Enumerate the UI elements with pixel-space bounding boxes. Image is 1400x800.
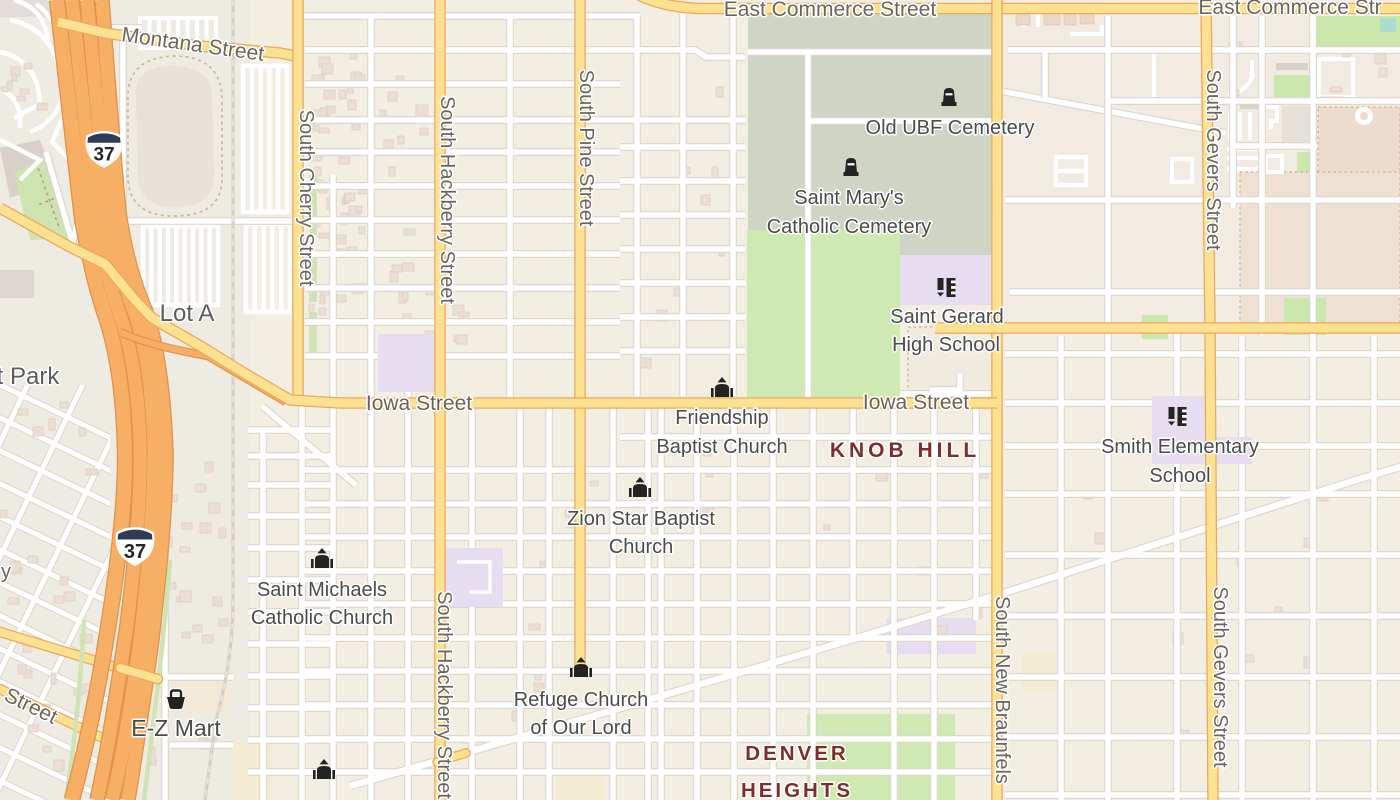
svg-text:Saint Mary's: Saint Mary's: [794, 187, 903, 209]
svg-text:Iowa Street: Iowa Street: [863, 391, 969, 414]
svg-text:Friendship: Friendship: [675, 407, 768, 429]
svg-text:South Pine Street: South Pine Street: [575, 70, 597, 227]
svg-text:Refuge Church: Refuge Church: [514, 689, 649, 711]
svg-text:HEIGHTS: HEIGHTS: [741, 779, 853, 800]
svg-text:Saint Michaels: Saint Michaels: [257, 579, 387, 601]
svg-text:E-Z Mart: E-Z Mart: [131, 715, 221, 741]
svg-text:High School: High School: [892, 334, 1000, 356]
svg-text:DENVER: DENVER: [745, 742, 848, 765]
svg-text:Catholic Church: Catholic Church: [251, 607, 393, 629]
svg-text:Baptist Church: Baptist Church: [656, 436, 787, 458]
svg-text:Church: Church: [609, 536, 673, 558]
svg-text:y: y: [1, 561, 11, 583]
svg-text:East Commerce Str: East Commerce Str: [1198, 0, 1381, 19]
svg-text:Smith Elementary: Smith Elementary: [1101, 436, 1259, 458]
svg-text:of Our Lord: of Our Lord: [530, 717, 631, 739]
svg-text:37: 37: [93, 145, 114, 166]
svg-text:South Hackberry Street: South Hackberry Street: [433, 591, 455, 799]
svg-text:School: School: [1149, 465, 1210, 487]
svg-text:South Gevers Street: South Gevers Street: [1209, 586, 1231, 768]
svg-text:East Commerce Street: East Commerce Street: [724, 0, 937, 21]
svg-text:South Hackberry Street: South Hackberry Street: [436, 96, 458, 304]
svg-text:Lot A: Lot A: [160, 300, 215, 327]
svg-text:KNOB HILL: KNOB HILL: [830, 439, 980, 462]
svg-text:37: 37: [124, 541, 146, 563]
svg-text:South Gevers Street: South Gevers Street: [1202, 69, 1224, 251]
svg-text:t Park: t Park: [0, 363, 60, 390]
svg-text:Catholic Cemetery: Catholic Cemetery: [767, 216, 932, 238]
svg-text:South Cherry Street: South Cherry Street: [295, 110, 317, 287]
svg-text:Saint Gerard: Saint Gerard: [890, 306, 1003, 328]
svg-text:South New Braunfels: South New Braunfels: [991, 596, 1013, 784]
svg-text:Iowa Street: Iowa Street: [366, 392, 472, 415]
svg-text:Zion Star Baptist: Zion Star Baptist: [567, 508, 715, 530]
svg-text:Old UBF Cemetery: Old UBF Cemetery: [866, 117, 1035, 139]
